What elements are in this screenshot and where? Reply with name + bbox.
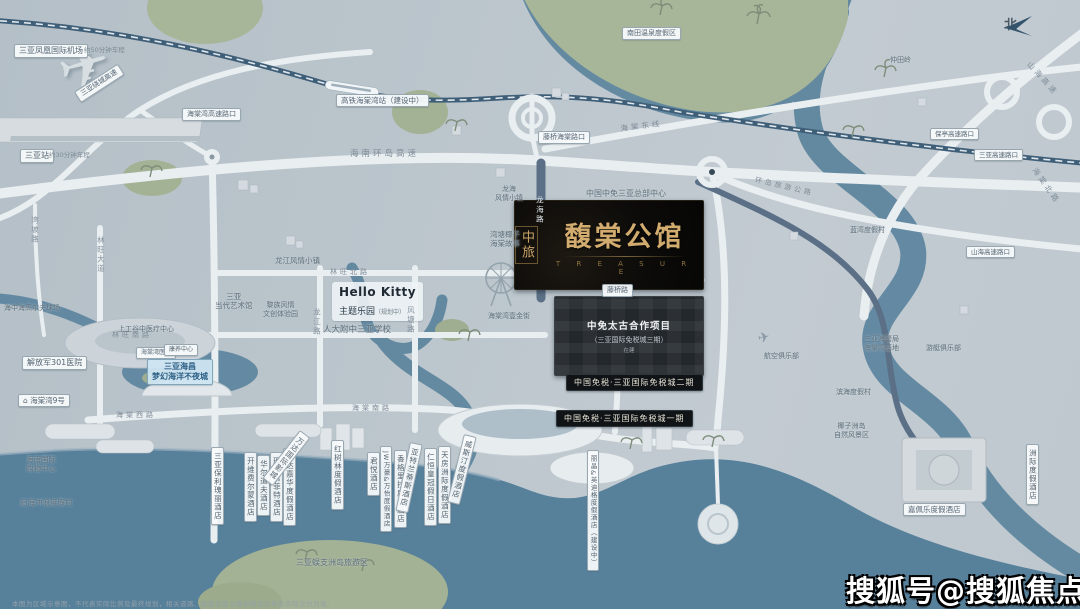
hotel-jw-marriott-label: JW万豪&万怡度假酒店 bbox=[380, 446, 392, 532]
hotel-crowne-label: 仁恒皇冠假日酒店 bbox=[424, 448, 437, 526]
intl-mall-label: 海南国际 购物中心 bbox=[26, 455, 56, 474]
hotel-interconti-htb-label: 天房洲际度假酒店 bbox=[438, 446, 451, 524]
hotel-grand-hyatt-label: 君悦酒店 bbox=[367, 452, 380, 496]
ring-tour-road-label: 环岛旅游公路 bbox=[754, 176, 814, 198]
longjiang-road-label: 龙江路 bbox=[312, 308, 321, 337]
nantian-hotspring-label: 南田温泉度假区 bbox=[622, 27, 681, 40]
g98-road-label: 海南环岛高速 bbox=[350, 149, 419, 160]
shanhai-exit-label: 山海高速路口 bbox=[966, 246, 1015, 258]
coastguard-base-label: 三亚海警局 海棠湾基地 bbox=[864, 335, 899, 353]
fengtang-road-label: 风塘路 bbox=[406, 306, 415, 335]
lanwan-resort-label: 蓝湾度假村 bbox=[850, 226, 885, 235]
longjiang-town-label: 龙江风情小镇 bbox=[275, 256, 320, 265]
sanya-exit-label: 三亚高速路口 bbox=[974, 149, 1023, 161]
rdfz-school-label: 人大附中三亚学校 bbox=[323, 325, 391, 336]
yezizhou-island-label: 椰子洲岛 自然风景区 bbox=[834, 422, 869, 440]
disclaimer-text: 本图为区域示意图，不代表实际比例及最终规划，相关道路、配套信息以政府规划文件及实… bbox=[12, 598, 334, 608]
hotel-fairmont-label: 开维费尔蒙酒店 bbox=[244, 452, 257, 522]
yijinjie-label: 海棠湾壹金街 bbox=[488, 312, 530, 321]
airport-label: 三亚凤凰国际机场 bbox=[14, 44, 88, 58]
hotel-interconti-label: 洲际度假酒店 bbox=[1026, 444, 1039, 505]
yacht-club-label: 游艇俱乐部 bbox=[926, 344, 961, 353]
rail-station-label: 高铁海棠湾站（建设中） bbox=[336, 94, 429, 107]
shanhai-expressway-label: 山海高速 bbox=[1025, 60, 1060, 97]
haichang-label: 三亚海昌 梦幻海洋不夜城 bbox=[147, 359, 213, 385]
pla301-hospital-label: 解放军301医院 bbox=[22, 356, 87, 370]
hospital-b-label: 康养中心 bbox=[164, 344, 198, 356]
wanpo-road-label: 湾坡路 bbox=[30, 216, 39, 245]
linwang-avenue-label: 林旺大道 bbox=[96, 236, 105, 274]
tengqiao-road-label: 藤桥路 bbox=[602, 284, 633, 297]
golf-club-label: 海中海高尔夫球场 bbox=[4, 304, 60, 313]
wantang-story-label: 湾塘椰子 海棠故事 bbox=[490, 230, 520, 249]
hotel-regent-indigo-label: 丽晶&英迪格度假酒店（建设中） bbox=[587, 450, 599, 571]
haitang-west-road-label: 海棠西路 bbox=[116, 411, 156, 420]
zhongtianling-label: 仲田岭 bbox=[890, 56, 911, 65]
linwang-north-road-label: 林旺北路 bbox=[330, 268, 370, 277]
haitangwan9-label: ⌂ 海棠湾9号 bbox=[18, 394, 70, 407]
cdf-hq-label: 中国中免三亚总部中心 bbox=[586, 189, 666, 199]
haitang-east-line-label: 海棠东线 bbox=[620, 119, 663, 133]
aviation-club-label: 航空俱乐部 bbox=[764, 352, 799, 361]
hotel-rosewood-label: 三亚保利瑰丽酒店 bbox=[211, 447, 224, 525]
labels-layer: 三亚凤凰国际机场约50分钟车程三亚站约30分钟车程三亚绕城高速海棠湾高速路口高铁… bbox=[0, 0, 1080, 609]
airport-drive-note: 约50分钟车程 bbox=[84, 46, 125, 54]
hotel-waldorf-label: 华尔道夫酒店 bbox=[257, 455, 270, 516]
hotel-capella-label: 嘉佩乐度假酒店 bbox=[903, 503, 966, 516]
houhai-surf-label: 后海冲浪度假村 bbox=[20, 498, 73, 507]
tengqiao-exit-label: 藤桥海棠路口 bbox=[538, 131, 590, 144]
ring-expressway-label: 三亚绕城高速 bbox=[74, 64, 125, 103]
station-drive-note: 约30分钟车程 bbox=[49, 151, 90, 159]
map-canvas: ✈ ✈ 中旅 馥棠公馆 T R E A S U R E 中免太古合作项目 （三亚… bbox=[0, 0, 1080, 609]
haitangwan-exit-label: 海棠湾高速路口 bbox=[182, 108, 241, 121]
linwang-south-road-label: 林旺南路 bbox=[112, 331, 152, 340]
haitang-north-road-label: 海棠北路 bbox=[1030, 166, 1062, 206]
art-museum-label: 三亚 当代艺术馆 bbox=[215, 292, 253, 311]
watermark: 搜狐号@搜狐焦点三亚站 bbox=[846, 568, 1080, 609]
haitang-south-road-label: 海棠南路 bbox=[352, 404, 392, 413]
hotel-mangrove-label: 红树林度假酒店 bbox=[331, 440, 344, 510]
longhai-road-label: 龙海路 bbox=[535, 196, 544, 225]
hotel-westin-label: 威斯汀度假酒店 bbox=[447, 434, 477, 505]
baoting-exit-label: 保亭高速路口 bbox=[930, 128, 979, 140]
longhai-town-label: 龙海 风情小镇 bbox=[495, 185, 523, 203]
binhai-resort-label: 滨海度假村 bbox=[836, 388, 871, 397]
wuzhizhou-label: 三亚蜈支洲岛旅游区 bbox=[296, 558, 368, 568]
lizu-street-label: 黎族风情 文创体验园 bbox=[263, 301, 298, 319]
